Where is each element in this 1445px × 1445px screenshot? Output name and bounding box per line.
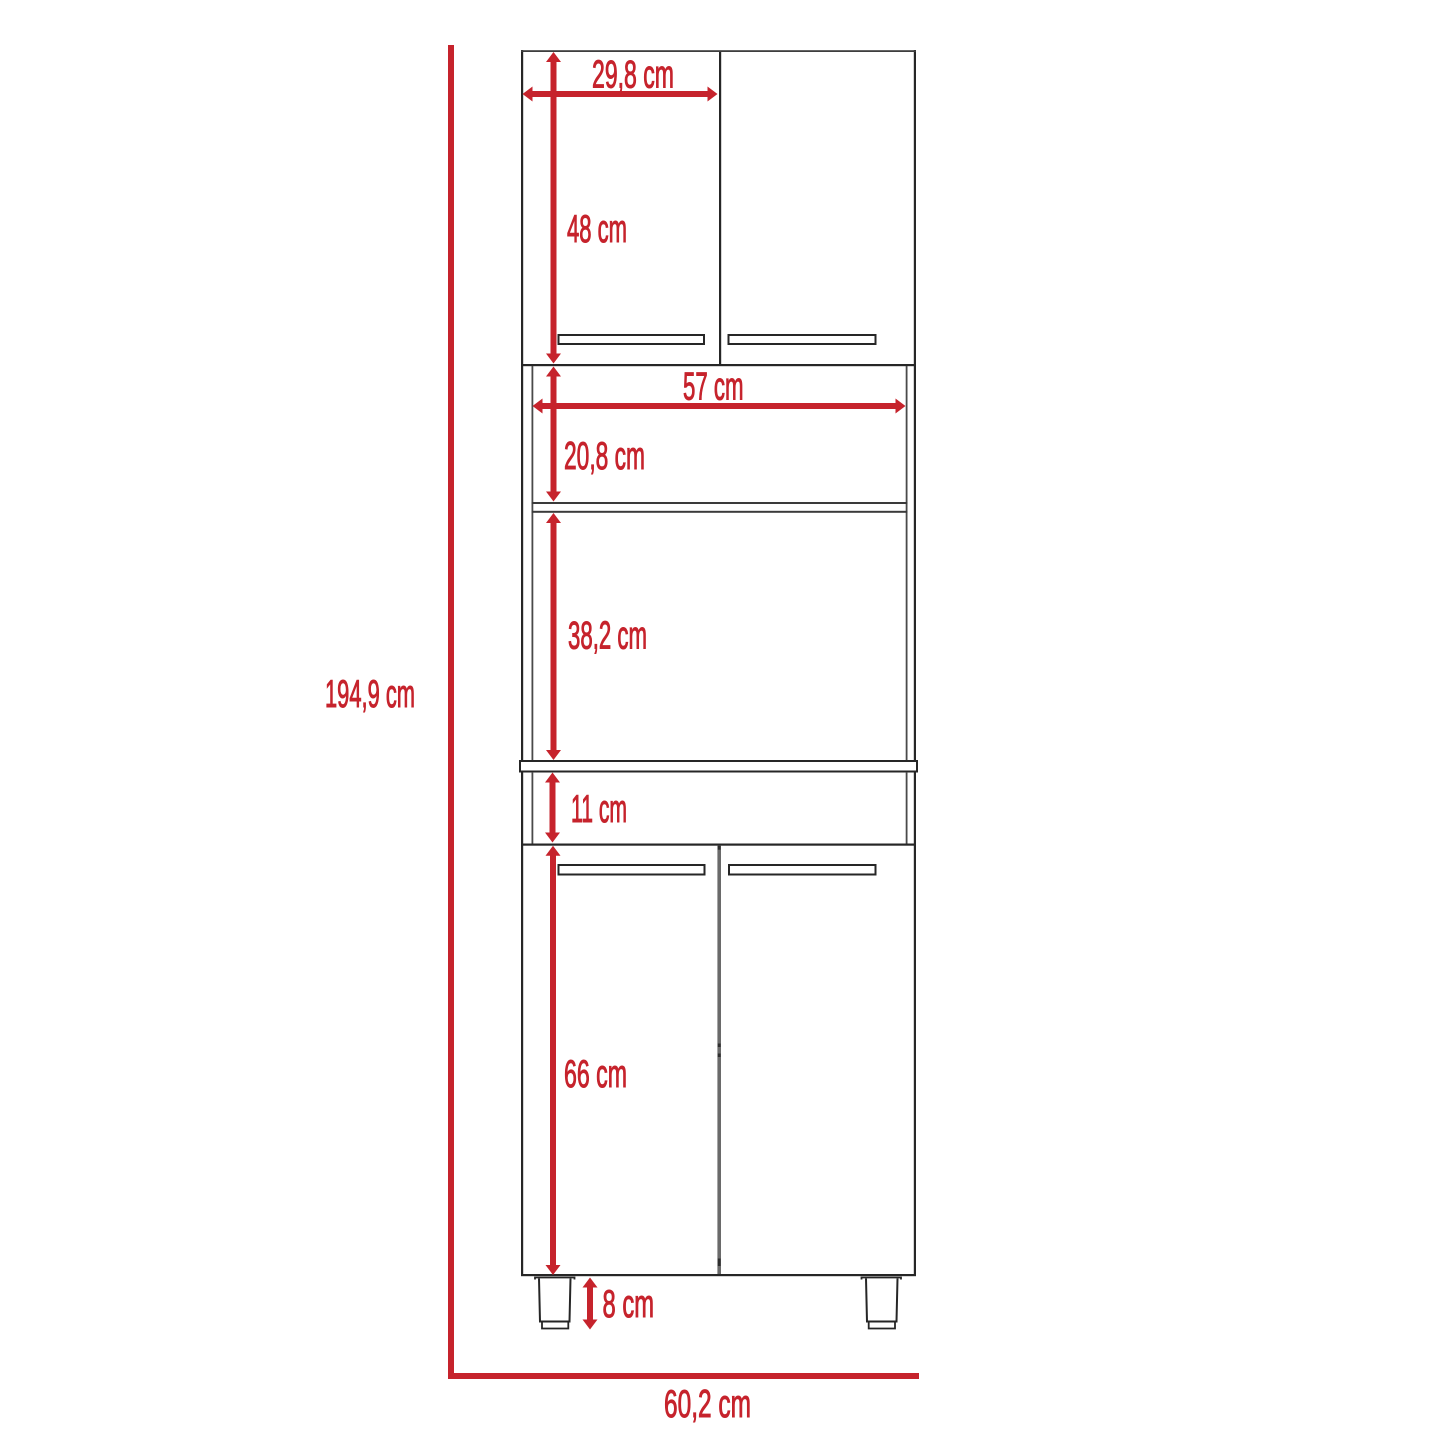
svg-text:29,8 cm: 29,8 cm <box>592 54 674 97</box>
svg-text:194,9 cm: 194,9 cm <box>325 673 415 716</box>
svg-text:48 cm: 48 cm <box>567 208 627 251</box>
svg-text:38,2 cm: 38,2 cm <box>568 615 647 658</box>
svg-text:11 cm: 11 cm <box>571 788 627 831</box>
svg-text:8 cm: 8 cm <box>603 1283 655 1326</box>
svg-text:20,8 cm: 20,8 cm <box>564 435 645 478</box>
svg-text:66 cm: 66 cm <box>564 1053 627 1096</box>
svg-text:60,2 cm: 60,2 cm <box>664 1383 751 1426</box>
svg-text:57 cm: 57 cm <box>683 366 744 409</box>
